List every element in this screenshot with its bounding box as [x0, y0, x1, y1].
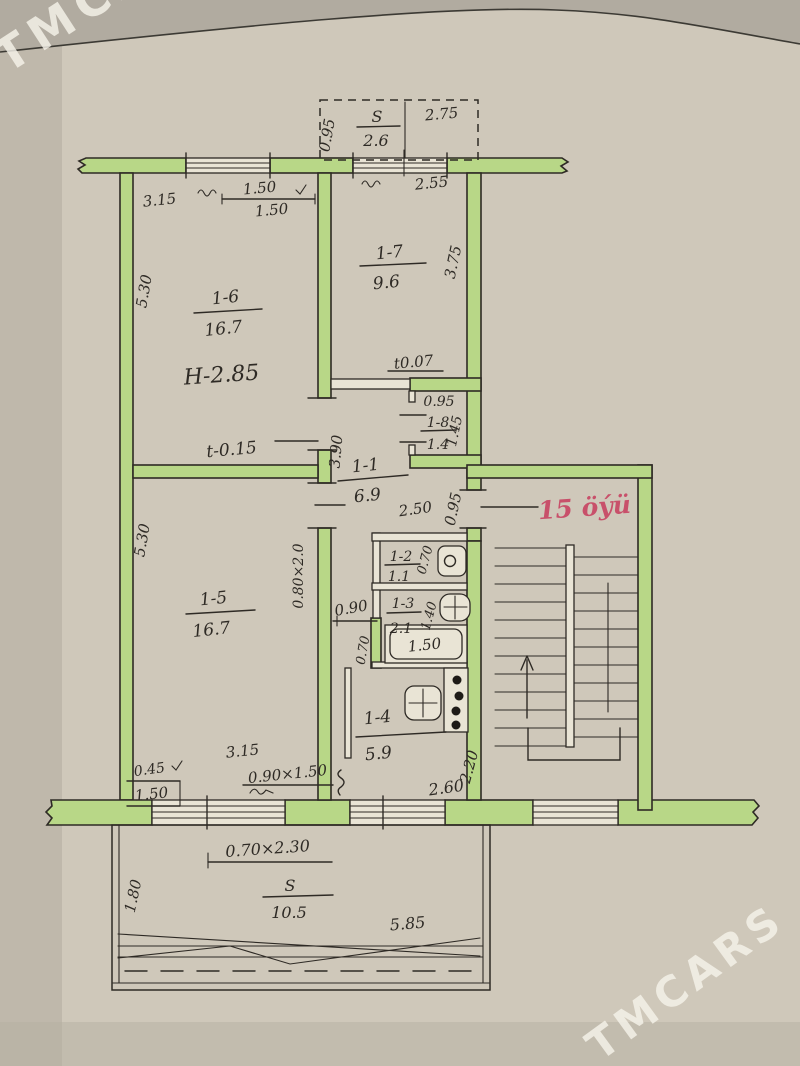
window-bottom-1-5: [152, 796, 285, 829]
partition-hall-1-7: [331, 379, 410, 389]
label-1-5-door: 0.80×2.0: [291, 543, 307, 608]
label-1-5-window-w: 1.50: [134, 783, 170, 804]
label-balcony-bottom-area: 10.5: [271, 903, 307, 922]
wall-stairwell-top: [467, 465, 652, 478]
label-1-5-wall: 3.15: [225, 740, 260, 761]
stairs-stringer: [566, 545, 574, 747]
label-1-6-ceiling: H-2.85: [182, 360, 260, 390]
kitchen-sink-icon: [405, 686, 441, 720]
wall-entry-stub: [467, 528, 481, 541]
wall-bottom-mid2-segment: [445, 800, 533, 825]
label-1-2-area: 1.1: [388, 569, 410, 585]
label-1-1-area: 6.9: [353, 485, 382, 508]
partition-wc-top: [372, 533, 467, 541]
wall-1-6-1-7: [318, 173, 331, 398]
label-window-bottom: 1.50: [254, 200, 289, 221]
wall-right-column: [467, 173, 481, 490]
toilet-icon: [438, 546, 466, 576]
label-balcony-top-s: S: [372, 107, 383, 126]
stove-icon: [444, 668, 468, 732]
wall-stairwell-right: [638, 465, 652, 810]
label-1-1-length: 3.90: [326, 434, 347, 469]
wall-bottom-mid-segment: [285, 800, 350, 825]
label-window-right: 2.55: [413, 172, 449, 193]
label-1-7-num: 1-7: [375, 242, 404, 265]
label-1-7-level: t0.07: [393, 351, 434, 372]
label-1-1-num: 1-1: [351, 455, 380, 478]
window-stairwell: [533, 800, 618, 825]
floorplan-drawing: 0.95 S 2.6 2.75 3.15 1.50 1.50 2.55 1-6 …: [0, 0, 800, 1066]
label-balcony-bottom-s: S: [285, 876, 296, 895]
wall-1-5-kitchen: [318, 528, 331, 800]
wall-bath-left-lower: [371, 618, 381, 668]
bath-sink-icon: [440, 594, 470, 621]
label-1-3-num: 1-3: [392, 596, 415, 612]
label-1-6-area: 16.7: [204, 317, 244, 341]
label-1-4-area: 5.9: [364, 743, 393, 766]
paper-shadow-left: [0, 0, 62, 1066]
label-1-5-num: 1-5: [199, 588, 228, 611]
wall-below-1-7: [410, 378, 481, 391]
label-1-8-num: 1-8: [427, 415, 450, 431]
label-1-6-num: 1-6: [211, 287, 240, 310]
label-1-3-area: 2.1: [389, 621, 412, 637]
label-window-top: 1.50: [242, 178, 277, 199]
label-1-7-area: 9.6: [372, 272, 401, 295]
label-1-8-width: 0.95: [423, 394, 454, 410]
wall-1-6-1-5: [133, 465, 318, 478]
label-1-4-num: 1-4: [363, 707, 392, 730]
partition-bath-left: [373, 533, 380, 618]
partition-wc-bath: [372, 583, 467, 590]
floorplan-photo: 0.95 S 2.6 2.75 3.15 1.50 1.50 2.55 1-6 …: [0, 0, 800, 1066]
label-1-2-num: 1-2: [390, 549, 413, 565]
label-balcony-top-width: 2.75: [423, 104, 459, 125]
partition-kitchen-left: [345, 668, 351, 758]
balcony-door-opening: [350, 796, 445, 829]
label-bathtub: 1.50: [407, 634, 443, 655]
wall-top-left-segment: [78, 158, 186, 173]
wall-left: [120, 173, 133, 800]
label-balcony-bottom-length: 5.85: [389, 913, 426, 935]
label-1-5-area: 16.7: [192, 618, 232, 642]
label-top-wall-left: 3.15: [142, 189, 177, 210]
paper-shadow-bottom: [0, 1022, 800, 1066]
label-balcony-top-area: 2.6: [362, 131, 388, 150]
